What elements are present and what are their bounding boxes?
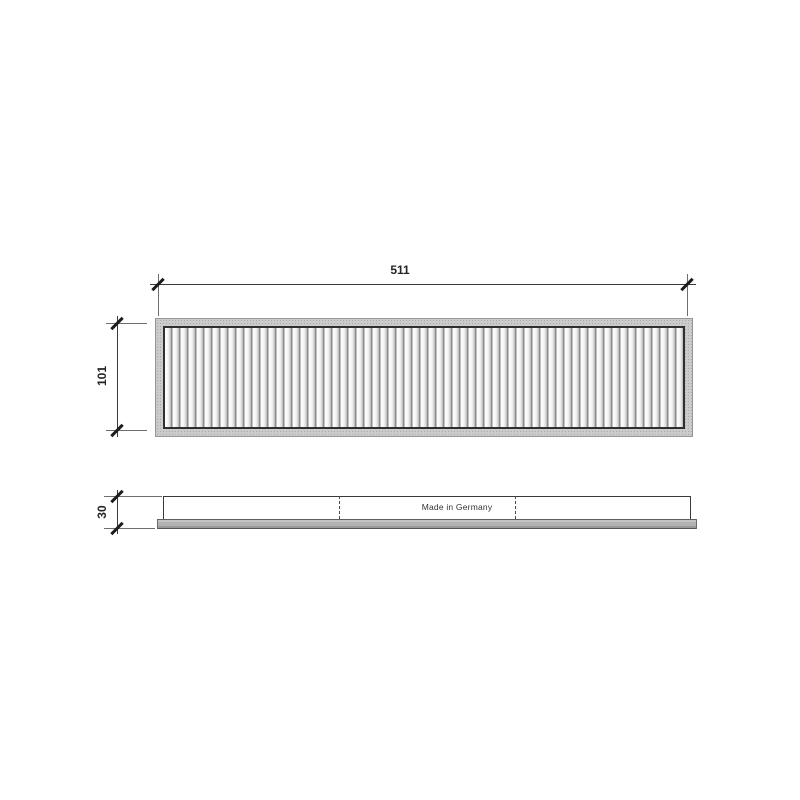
filter-pleated-media bbox=[163, 326, 685, 429]
height-dim-label: 101 bbox=[95, 356, 109, 396]
side-view-right-edge bbox=[690, 496, 691, 519]
height-dim-line bbox=[117, 316, 118, 437]
technical-drawing-canvas: 511 101 Made in Germany 30 bbox=[0, 0, 800, 800]
width-dim-line bbox=[150, 284, 696, 285]
depth-dim-label: 30 bbox=[95, 492, 109, 532]
made-in-germany-marking: Made in Germany bbox=[397, 501, 517, 513]
filter-top-view-frame bbox=[155, 318, 693, 437]
height-dim-extension-bottom bbox=[106, 430, 147, 431]
side-view-base-bar bbox=[157, 519, 697, 529]
height-dim-extension-top bbox=[106, 323, 147, 324]
side-view-top-edge bbox=[163, 496, 690, 497]
side-view-segment-divider bbox=[339, 496, 340, 519]
depth-dim-extension-bottom bbox=[104, 528, 155, 529]
side-view-left-edge bbox=[163, 496, 164, 519]
width-dim-label: 511 bbox=[372, 263, 428, 277]
